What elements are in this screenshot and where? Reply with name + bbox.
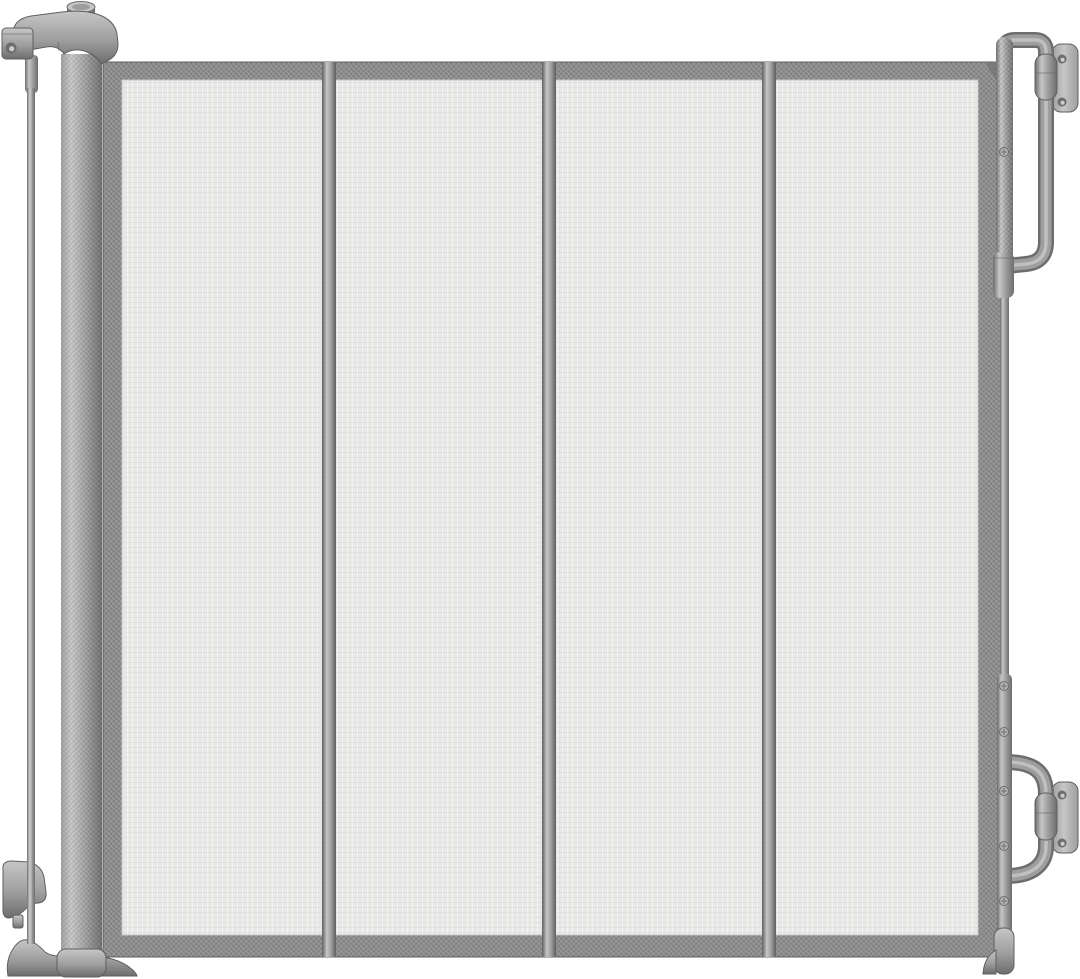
screw-hole-inner	[1061, 842, 1065, 846]
divider-bar	[542, 62, 556, 957]
product-image: Gray retractable mesh safety gate, front…	[0, 0, 1080, 979]
mesh-panel	[103, 62, 1002, 957]
screw	[1000, 897, 1009, 906]
screw-hole-inner	[1061, 101, 1065, 105]
hinge-barrel	[1035, 54, 1057, 100]
foot-cap	[994, 928, 1014, 974]
post-pedestal	[57, 949, 106, 977]
mount-bracket-bottom	[1005, 762, 1057, 876]
screw	[1000, 787, 1009, 796]
spool-pole-highlight	[30, 88, 32, 944]
lock-knob-top-inset	[72, 4, 90, 10]
latch-bar-mid	[1000, 296, 1009, 678]
screw	[1000, 682, 1009, 691]
latch-catch-tab	[13, 915, 23, 928]
latch-bar-lower	[997, 674, 1012, 934]
screw	[1000, 148, 1009, 157]
screw	[1000, 842, 1009, 851]
pole-bracket	[2, 28, 33, 59]
divider-bar	[762, 62, 776, 957]
screw-hole-inner	[1061, 58, 1065, 62]
latch-catch	[3, 861, 46, 918]
spool-pole-top	[25, 55, 38, 93]
roller-post-knurl	[61, 54, 102, 958]
pole-bracket-hole-inner	[9, 46, 14, 51]
screw	[1000, 728, 1009, 737]
safety-gate-illustration: Gray retractable mesh safety gate, front…	[0, 0, 1080, 979]
hinge-barrel	[1035, 793, 1057, 840]
divider-bar	[322, 62, 336, 957]
screw-hole-inner	[1061, 794, 1065, 798]
latch-bar-sleeve	[993, 252, 1014, 298]
